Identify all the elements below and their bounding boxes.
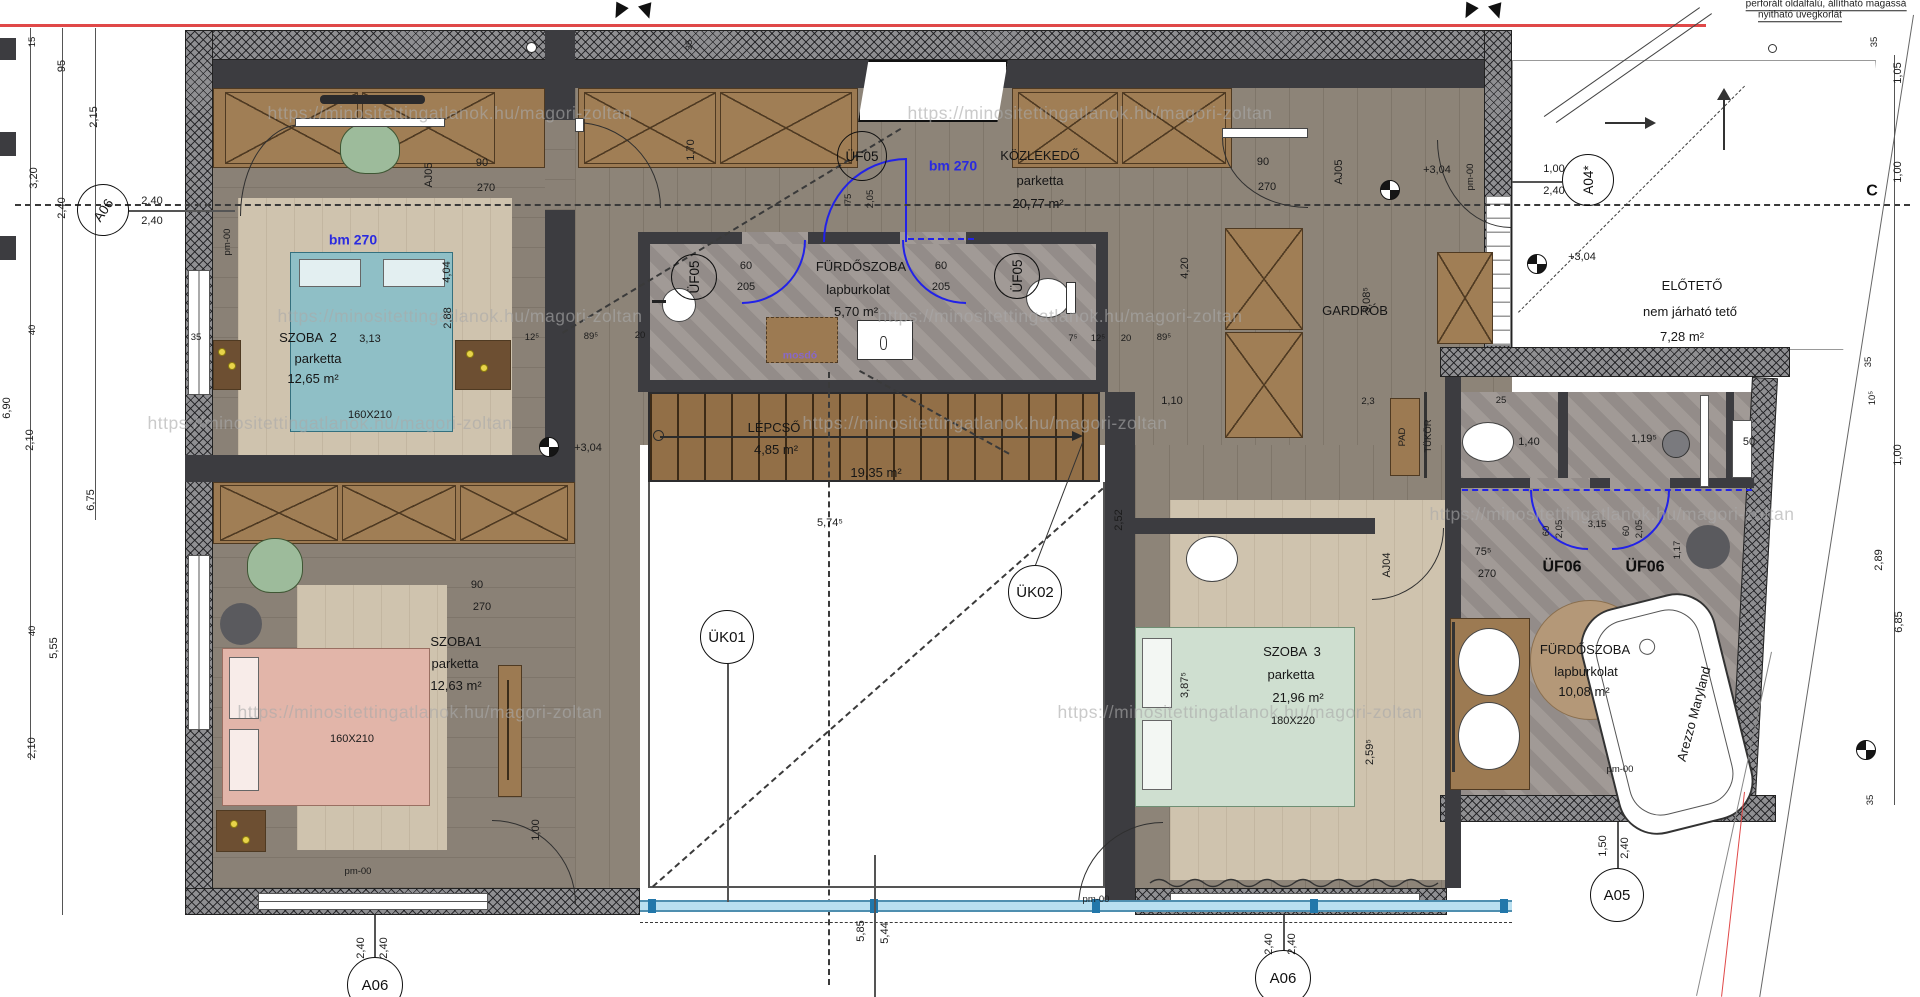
- dim: pm-00: [1083, 895, 1110, 905]
- dim: 12⁵: [1091, 334, 1106, 344]
- dim: 2,40: [57, 197, 69, 218]
- marker-a06-bottom-right: A06: [1255, 950, 1311, 997]
- fixture-label: mosdó: [783, 350, 817, 361]
- marker-uf05-top: ÜF05: [837, 131, 887, 181]
- dim: 5,74⁵: [817, 518, 843, 530]
- room-name: SZOBA1: [430, 635, 481, 649]
- dim: 3,87⁵: [1180, 672, 1192, 698]
- door-height-label: bm 270: [329, 233, 377, 248]
- door-dim: 60: [1622, 526, 1632, 537]
- watermark: https://minositettingatlanok.hu/magori-z…: [1058, 703, 1423, 721]
- dim: 75: [844, 194, 854, 205]
- dim: 2,40: [379, 937, 391, 958]
- marker-a06-left: A06: [67, 174, 139, 246]
- dim: pm-00: [1607, 765, 1634, 775]
- marker-uf05-left: ÜF05: [671, 254, 717, 300]
- room-area: 20,77 m²: [1012, 197, 1063, 211]
- room-floor: parketta: [432, 657, 479, 671]
- dim: 95: [57, 60, 69, 72]
- level-marker-stairs: [539, 437, 559, 457]
- room-name: GARDRÓB: [1322, 304, 1388, 318]
- dim: 6,75: [86, 489, 98, 510]
- room-name: SZOBA 3: [1263, 645, 1321, 659]
- dim: 2,59⁵: [1365, 739, 1377, 765]
- room-area: 12,65 m²: [287, 372, 338, 386]
- marker-uk01: ÜK01: [700, 610, 754, 664]
- door-dim: 90: [471, 580, 483, 592]
- level-text: +3,04: [1423, 165, 1451, 177]
- dim: 35: [1864, 357, 1874, 368]
- dim: pm-00: [223, 229, 233, 256]
- marker-a06-bottom-left: A06: [347, 957, 403, 997]
- dim: 1,70: [686, 139, 698, 160]
- dim: pm-00: [1466, 164, 1476, 191]
- dim: 3,20: [29, 167, 41, 188]
- dim: 10⁵: [1868, 391, 1878, 406]
- watermark: https://minositettingatlanok.hu/magori-z…: [878, 307, 1243, 325]
- watermark: https://minositettingatlanok.hu/magori-z…: [268, 104, 633, 122]
- dim: 40: [28, 325, 38, 336]
- room-floor: parketta: [1017, 174, 1064, 188]
- room-name: ELŐTETŐ: [1662, 279, 1723, 293]
- dim: 35: [1866, 795, 1876, 806]
- dim: 2,15: [89, 106, 101, 127]
- labels-layer: https://minositettingatlanok.hu/magori-z…: [0, 0, 1920, 997]
- level-marker-corridor: [1380, 180, 1400, 200]
- room-area: 7,28 m²: [1660, 330, 1704, 344]
- dim: 2,88: [443, 307, 455, 328]
- room-area: 4,85 m²: [754, 443, 798, 457]
- room-floor: lapburkolat: [826, 283, 890, 297]
- dim: 3,13: [359, 334, 380, 346]
- door-dim: 2,05: [1635, 520, 1645, 539]
- watermark: https://minositettingatlanok.hu/magori-z…: [148, 414, 513, 432]
- dim: 35: [191, 333, 202, 343]
- dim: 40: [28, 626, 38, 637]
- room-area: 12,63 m²: [430, 679, 481, 693]
- dim: 2,40: [356, 937, 368, 958]
- dim: 1,00: [531, 819, 543, 840]
- door-code: ÜF06: [1542, 560, 1581, 577]
- level-text: +3,04: [1568, 252, 1596, 264]
- room-name: KÖZLEKEDŐ: [1000, 149, 1079, 163]
- door-code: ÜF06: [1625, 560, 1664, 577]
- section-letter: C: [1866, 184, 1878, 201]
- dim: 20: [1121, 334, 1132, 344]
- dim: 1,19⁵: [1631, 434, 1657, 446]
- door-dim: 270: [477, 183, 495, 195]
- dim: 89⁵: [1157, 333, 1172, 343]
- dim: 2,40: [1620, 837, 1632, 858]
- bed-size: 180X220: [1271, 716, 1315, 728]
- dim: 1,10: [1161, 396, 1182, 408]
- bed-size: 160X210: [348, 410, 392, 422]
- door-dim: 205: [932, 282, 950, 294]
- dim: 2,89: [1874, 549, 1886, 570]
- room-floor: parketta: [295, 352, 342, 366]
- room-name: SZOBA 2: [279, 331, 337, 345]
- room-floor: parketta: [1268, 668, 1315, 682]
- door-code: AJ05: [1334, 159, 1346, 184]
- dim: 5,85: [856, 920, 868, 941]
- dim: 3,15: [1588, 520, 1607, 530]
- door-dim: 2,05: [1555, 520, 1565, 539]
- dim: 5,44: [880, 922, 892, 943]
- door-height-label: bm 270: [929, 159, 977, 174]
- dim: 35: [685, 40, 695, 51]
- dim: 89⁵: [584, 332, 599, 342]
- dim: 2,52: [1114, 509, 1126, 530]
- watermark: https://minositettingatlanok.hu/magori-z…: [908, 104, 1273, 122]
- fixture-label: PAD: [1398, 428, 1408, 447]
- dim: 2,40: [1543, 186, 1564, 198]
- marker-a05: A05: [1590, 868, 1644, 922]
- door-dim: 270: [1478, 569, 1496, 581]
- door-dim: 270: [473, 602, 491, 614]
- marker-uk02: ÜK02: [1008, 565, 1062, 619]
- watermark: https://minositettingatlanok.hu/magori-z…: [278, 307, 643, 325]
- dim: 6,90: [2, 397, 14, 418]
- room-floor: lapburkolat: [1554, 665, 1618, 679]
- dim: 35: [1870, 37, 1880, 48]
- door-code: AJ04: [1382, 552, 1394, 577]
- dim: 50: [1743, 437, 1755, 449]
- door-dim: 75⁵: [1475, 547, 1492, 559]
- room-area: 21,96 m²: [1272, 691, 1323, 705]
- dim: 1,00: [1893, 444, 1905, 465]
- room-area: 5,70 m²: [834, 305, 878, 319]
- fixture-label: TÜKÖR: [1424, 419, 1434, 452]
- door-dim: 60: [740, 261, 752, 273]
- door-dim: 60: [1542, 526, 1552, 537]
- door-code: AJ05: [424, 162, 436, 187]
- dim: 2,10: [27, 737, 39, 758]
- dim: 2,10: [25, 429, 37, 450]
- fixture-label: Arezzo Maryland: [1675, 665, 1713, 763]
- door-dim: 60: [935, 261, 947, 273]
- door-dim: 90: [1257, 157, 1269, 169]
- room-area: 10,08 m²: [1558, 685, 1609, 699]
- watermark: https://minositettingatlanok.hu/magori-z…: [803, 414, 1168, 432]
- room-name: FÜRDŐSZOBA: [816, 260, 906, 274]
- door-dim: 270: [1258, 182, 1276, 194]
- marker-a04star: A04*: [1562, 154, 1614, 206]
- door-dim: 205: [737, 282, 755, 294]
- dim: 25: [1496, 396, 1507, 406]
- dim: 2,40: [141, 216, 162, 228]
- dim: 7⁵: [1068, 334, 1077, 344]
- room-name: FÜRDŐSZOBA: [1540, 643, 1630, 657]
- dim: 4,20: [1180, 257, 1192, 278]
- dim: 1,05: [1893, 62, 1905, 83]
- room-floor: nem járható tető: [1643, 305, 1737, 319]
- dim: 5,55: [49, 637, 61, 658]
- dim: 20: [635, 331, 646, 341]
- level-text: +3,04: [574, 443, 602, 455]
- watermark: https://minositettingatlanok.hu/magori-z…: [238, 703, 603, 721]
- dim: 15: [28, 37, 38, 48]
- marker-uf05-right: ÜF05: [994, 253, 1040, 299]
- dim: 2,3: [1361, 397, 1374, 407]
- dim: 12⁵: [525, 333, 540, 343]
- dim: 1,40: [1518, 437, 1539, 449]
- dim: 1,50: [1598, 835, 1610, 856]
- dim: pm-00: [345, 867, 372, 877]
- room-area: 19,35 m²: [850, 466, 901, 480]
- dim: 2,05: [866, 190, 876, 209]
- dim: 4,04: [442, 261, 454, 282]
- dim: 1,00: [1893, 161, 1905, 182]
- note: nyitható üvegkorlát: [1758, 10, 1842, 22]
- watermark: https://minositettingatlanok.hu/magori-z…: [1430, 505, 1795, 523]
- dim: 6,85: [1894, 611, 1906, 632]
- level-marker-right: [1856, 740, 1876, 760]
- dim: 2,40: [141, 196, 162, 208]
- floor-plan: https://minositettingatlanok.hu/magori-z…: [0, 0, 1920, 997]
- room-name: LÉPCSŐ: [748, 421, 801, 435]
- dim: 1,17: [1673, 541, 1683, 560]
- level-marker-canopy: [1527, 254, 1547, 274]
- door-dim: 90: [476, 158, 488, 170]
- bed-size: 160X210: [330, 734, 374, 746]
